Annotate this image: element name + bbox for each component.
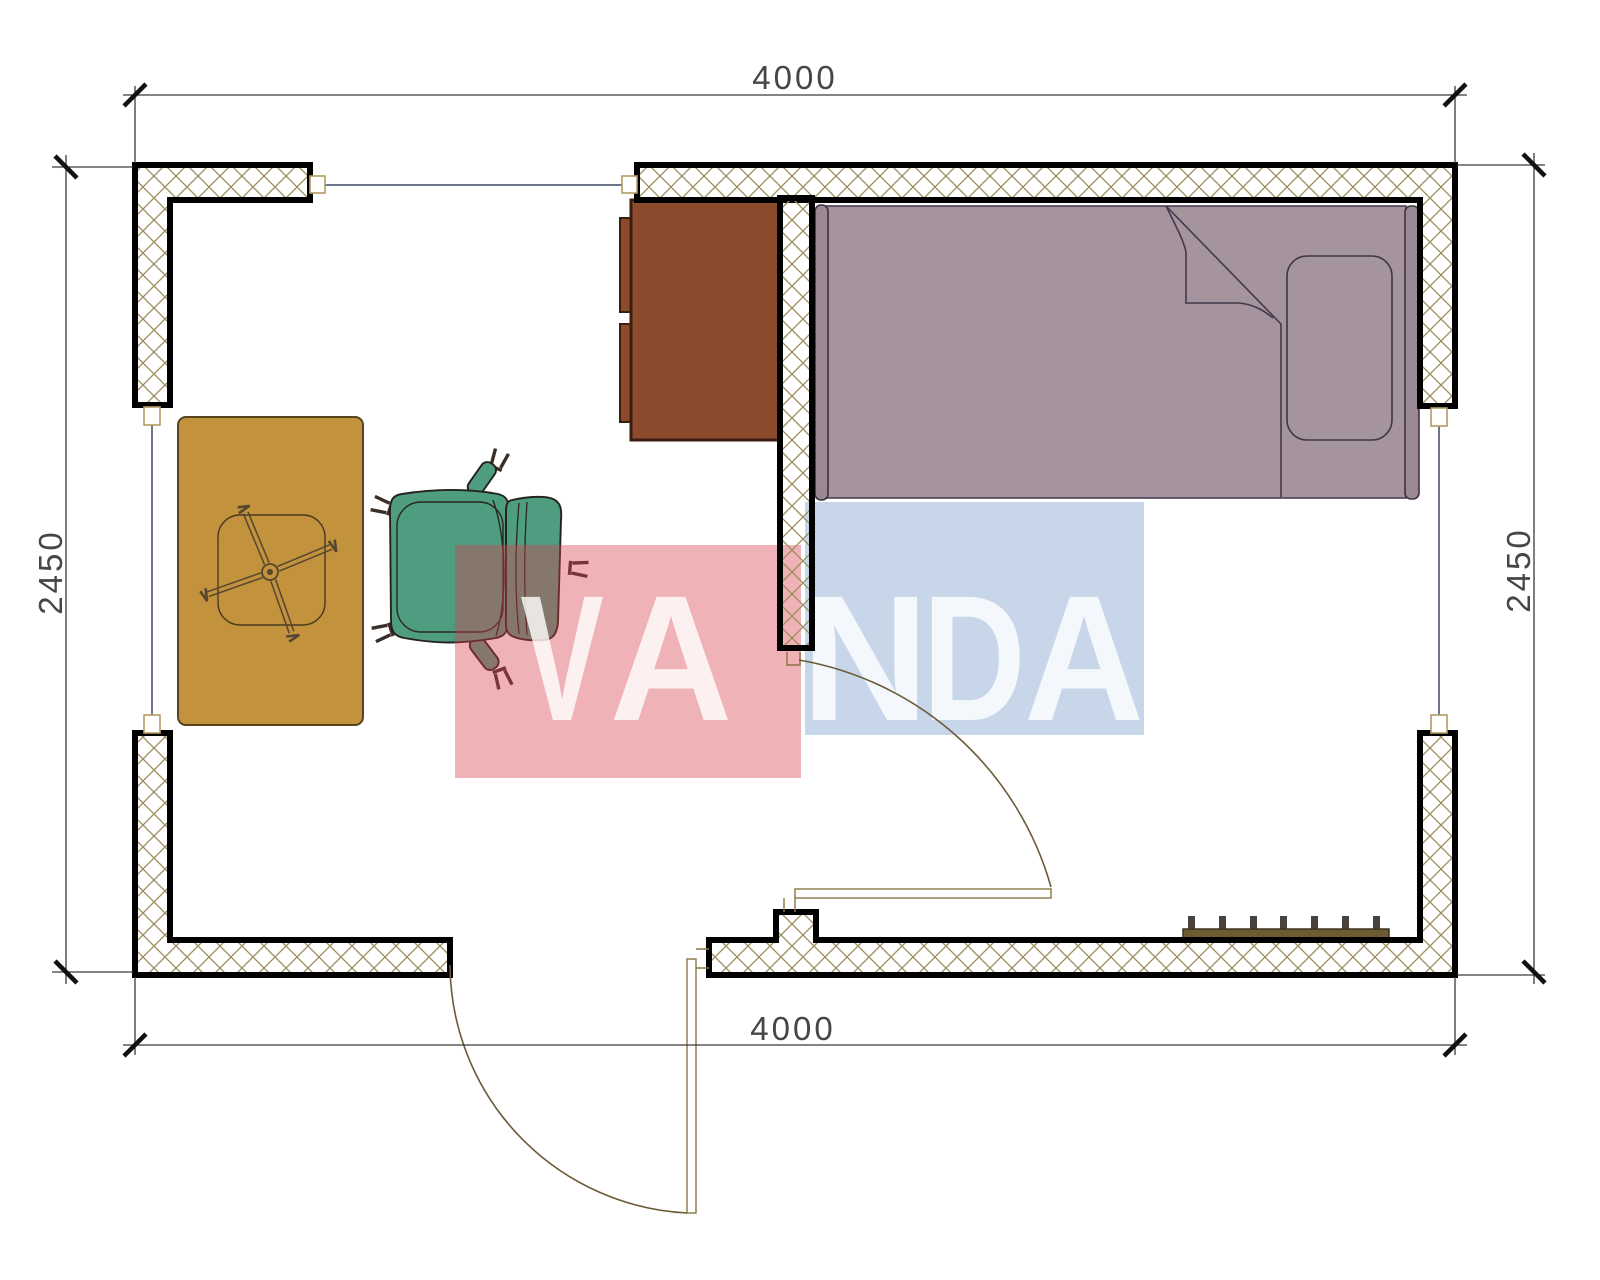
svg-text:V: V [520,558,604,758]
svg-text:4000: 4000 [750,1010,835,1047]
svg-text:2450: 2450 [32,529,69,614]
svg-text:A: A [1024,558,1144,758]
svg-text:D: D [922,559,1025,759]
svg-text:2450: 2450 [1500,527,1537,612]
svg-text:N: N [801,558,929,758]
svg-text:A: A [610,558,733,758]
svg-text:4000: 4000 [752,59,837,96]
